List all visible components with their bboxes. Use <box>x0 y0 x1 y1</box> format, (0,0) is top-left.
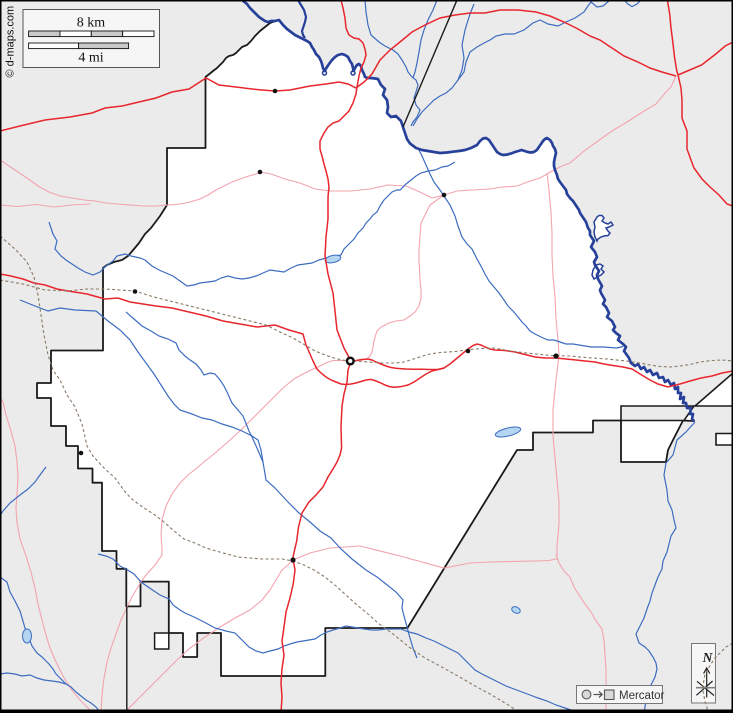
svg-text:© d-maps.com: © d-maps.com <box>5 6 17 78</box>
svg-text:4 mi: 4 mi <box>78 51 103 66</box>
svg-text:8 km: 8 km <box>77 16 106 31</box>
svg-text:Mercator: Mercator <box>619 690 665 702</box>
